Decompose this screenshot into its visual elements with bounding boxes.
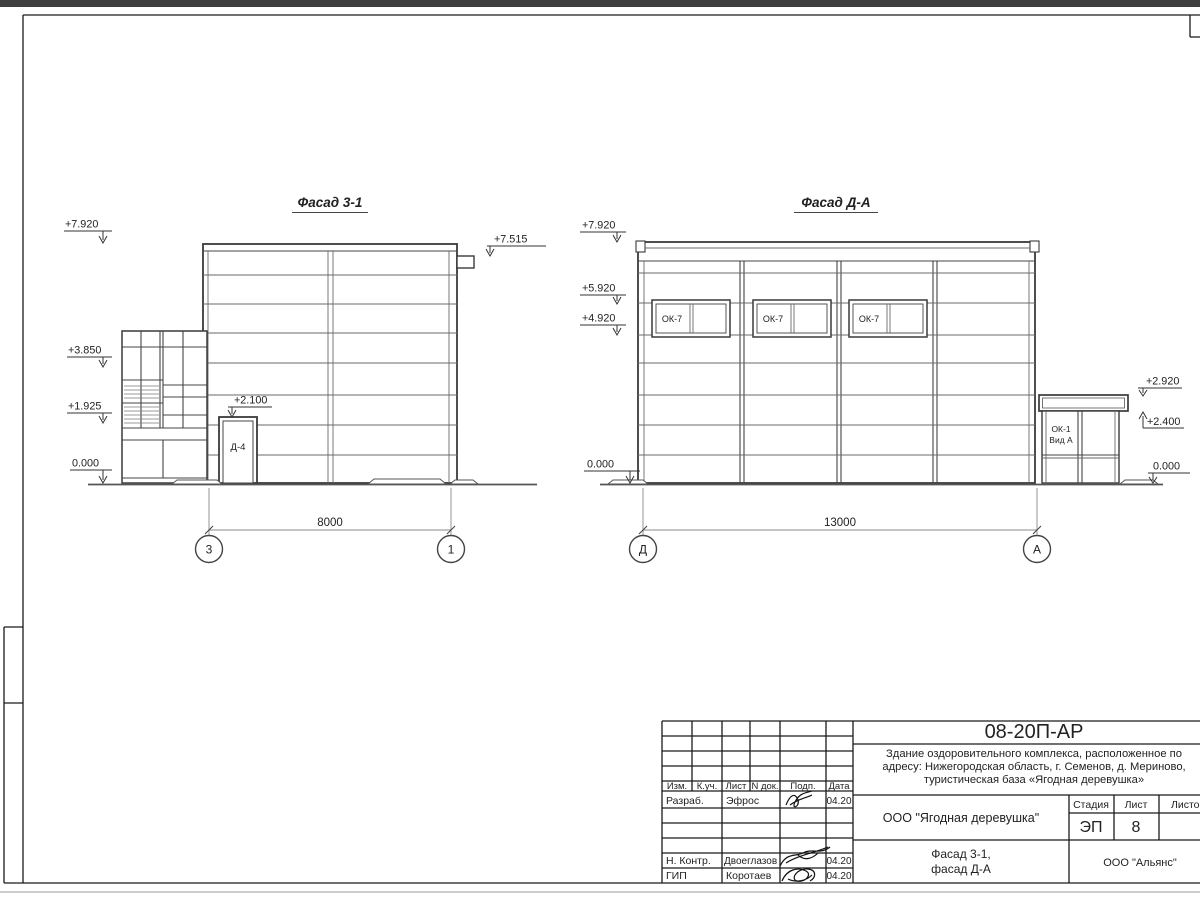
row-nkontr-role: Н. Контр. (666, 855, 711, 867)
project-line-2: адресу: Нижегородская область, г. Семено… (882, 761, 1185, 773)
elev-mark-0000-right-facade-left: 0.000 (584, 459, 640, 484)
svg-text:+5.920: +5.920 (582, 283, 615, 295)
facade-d-a: Фасад Д-А (580, 195, 1190, 563)
facade-d-a-title: Фасад Д-А (801, 195, 870, 210)
window-ok7-1-label: ОК-7 (662, 314, 682, 324)
col-list: Лист (726, 781, 747, 792)
svg-text:+2.400: +2.400 (1147, 416, 1180, 428)
vestibule-label-1: ОК-1 (1051, 424, 1070, 434)
elev-mark-3850: +3.850 (67, 345, 112, 368)
svg-text:0.000: 0.000 (587, 459, 614, 471)
svg-text:0.000: 0.000 (72, 458, 99, 470)
stage-value: ЭП (1080, 819, 1103, 836)
signature-gip (782, 869, 815, 881)
col-kuch: К.уч. (697, 781, 718, 792)
row-gip-date: 04.20 (826, 871, 851, 882)
project-description: Здание оздоровительного комплекса, распо… (882, 748, 1185, 786)
col-izm: Изм. (667, 781, 687, 792)
window-ok7-2-label: ОК-7 (763, 314, 783, 324)
col-ndok: N док. (751, 781, 778, 792)
client-name: ООО "Ягодная деревушка" (883, 811, 1039, 825)
door-d4: Д-4 (219, 417, 257, 483)
svg-text:+7.515: +7.515 (494, 234, 527, 246)
title-block: Изм. К.уч. Лист N док. Подп. Дата Разраб… (662, 721, 1200, 883)
vestibule-label-2: Вид А (1049, 435, 1073, 445)
svg-text:+2.920: +2.920 (1146, 376, 1179, 388)
drawing-title-line-1: Фасад 3-1, (931, 847, 990, 861)
roof-scupper (457, 256, 474, 268)
stage-label: Стадия (1073, 799, 1109, 811)
screen-top-bar (0, 0, 1200, 7)
row-razrab-date: 04.20 (826, 796, 851, 807)
window-ok7-1: ОК-7 (652, 300, 730, 337)
drawing-sheet: { "facade_left": { "title": "Фасад 3-1",… (0, 0, 1200, 900)
svg-text:0.000: 0.000 (1153, 461, 1180, 473)
left-margin-boxes (4, 627, 23, 883)
top-right-corner-box (1190, 15, 1200, 37)
row-razrab-name: Эфрос (726, 795, 759, 807)
axis-a-label: А (1033, 543, 1041, 557)
svg-text:+7.920: +7.920 (582, 220, 615, 232)
drawing-sheet-svg: Фасад 3-1 (0, 0, 1200, 900)
facade-3-1-dimension: 8000 3 1 (196, 488, 465, 563)
elev-mark-5920: +5.920 (580, 283, 626, 305)
sheet-value: 8 (1132, 819, 1141, 836)
row-gip-role: ГИП (666, 870, 687, 882)
elev-mark-7920-right: +7.920 (580, 220, 626, 243)
dimension-13000: 13000 (824, 517, 856, 529)
elev-mark-7920-left: +7.920 (64, 219, 112, 244)
window-ok7-3-label: ОК-7 (859, 314, 879, 324)
facade-3-1-stair-annex (122, 331, 207, 483)
window-ok7-2: ОК-7 (753, 300, 831, 337)
vestibule-glazing (1042, 411, 1119, 483)
parapet-cap-right (1030, 241, 1039, 252)
facade-d-a-dimension: 13000 Д А (630, 488, 1051, 563)
elev-mark-2400-canopy-bottom: +2.400 (1139, 412, 1184, 428)
elev-mark-1925: +1.925 (67, 401, 112, 424)
vestibule-ok1: ОК-1 Вид А (1039, 395, 1128, 483)
sheet-label: Лист (1125, 799, 1148, 811)
row-nkontr-date: 04.20 (826, 856, 851, 867)
project-line-1: Здание оздоровительного комплекса, распо… (886, 748, 1182, 760)
row-razrab-role: Разраб. (666, 795, 704, 807)
signature-nkontr (780, 847, 830, 866)
axis-3-label: 3 (206, 543, 213, 557)
door-d4-label: Д-4 (231, 442, 246, 453)
svg-text:+3.850: +3.850 (68, 345, 101, 357)
row-nkontr-name: Двоеглазов (724, 856, 777, 867)
elev-mark-7515-scupper: +7.515 (486, 234, 546, 257)
svg-text:+2.100: +2.100 (234, 395, 267, 407)
signature-razrab (786, 791, 812, 807)
window-ok7-3: ОК-7 (849, 300, 927, 337)
contractor-name: ООО "Альянс" (1103, 857, 1177, 869)
facade-3-1: Фасад 3-1 (64, 195, 546, 563)
svg-text:+1.925: +1.925 (68, 401, 101, 413)
axis-1-label: 1 (448, 543, 455, 557)
axis-d-label: Д (639, 543, 647, 557)
dimension-8000: 8000 (317, 517, 343, 529)
drawing-title-line-2: фасад Д-А (931, 862, 991, 876)
project-line-3: туристическая база «Ягодная деревушка» (924, 774, 1144, 786)
elev-mark-0000-right-facade-right: 0.000 (1148, 461, 1190, 484)
svg-text:+4.920: +4.920 (582, 313, 615, 325)
elev-mark-2920-canopy: +2.920 (1138, 376, 1182, 397)
svg-text:+7.920: +7.920 (65, 219, 98, 231)
elev-mark-0000-left-facade: 0.000 (70, 458, 112, 484)
row-gip-name: Коротаев (726, 870, 772, 882)
facade-d-a-main-volume (636, 241, 1039, 483)
parapet-cap-left (636, 241, 645, 252)
doc-number: 08-20П-АР (985, 721, 1084, 743)
facade-3-1-title: Фасад 3-1 (298, 195, 363, 210)
sheets-label: Листов (1171, 799, 1200, 811)
col-data: Дата (828, 781, 850, 792)
col-podp: Подп. (790, 781, 815, 792)
elev-mark-4920: +4.920 (580, 313, 626, 336)
